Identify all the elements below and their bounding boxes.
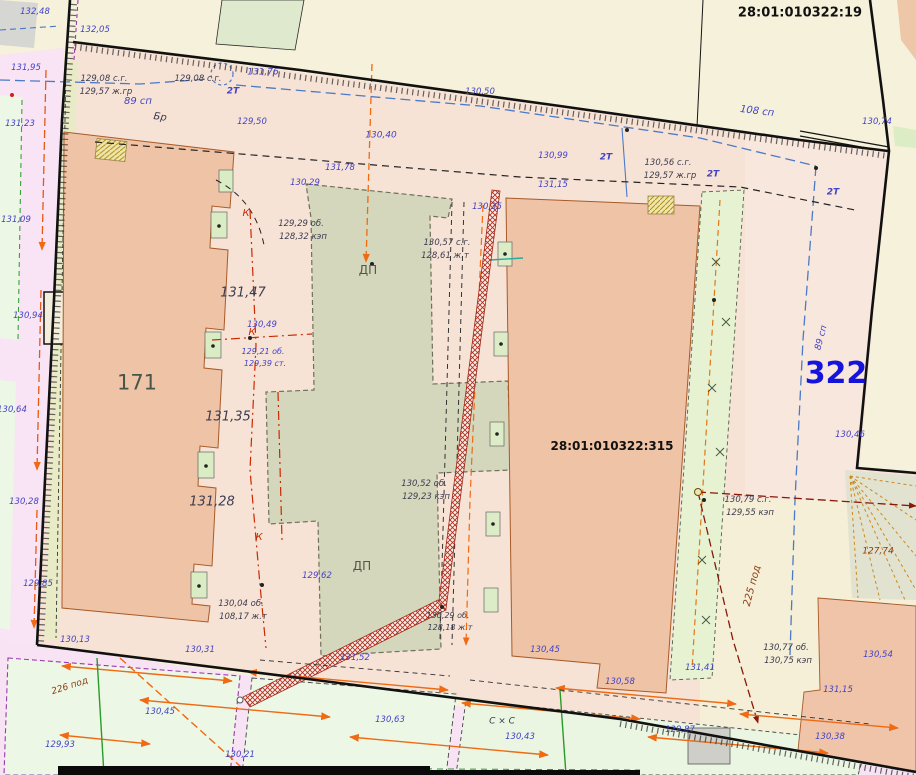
slope-symbol (845, 470, 916, 600)
building-171 (62, 132, 234, 622)
water-well (695, 489, 702, 496)
cadastral-map[interactable]: 28:01:010322:19 28:01:010322:315 322 171… (0, 0, 916, 775)
building-315 (484, 196, 700, 693)
map-canvas (0, 0, 916, 775)
